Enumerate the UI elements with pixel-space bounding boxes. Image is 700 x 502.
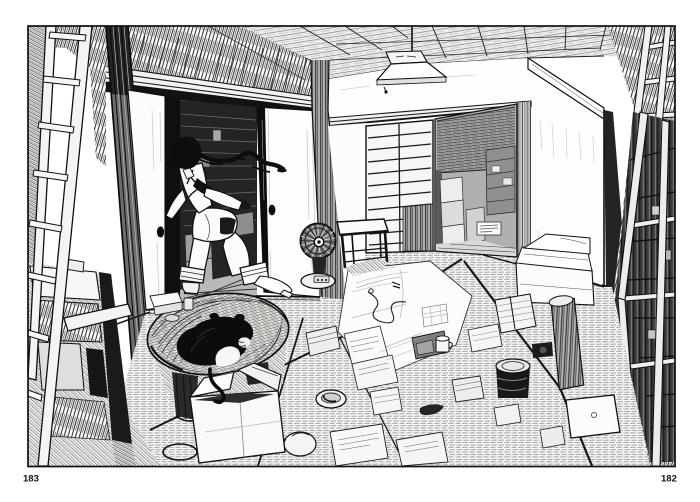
svg-text:183: 183 — [23, 474, 39, 485]
svg-text:182: 182 — [661, 474, 677, 485]
